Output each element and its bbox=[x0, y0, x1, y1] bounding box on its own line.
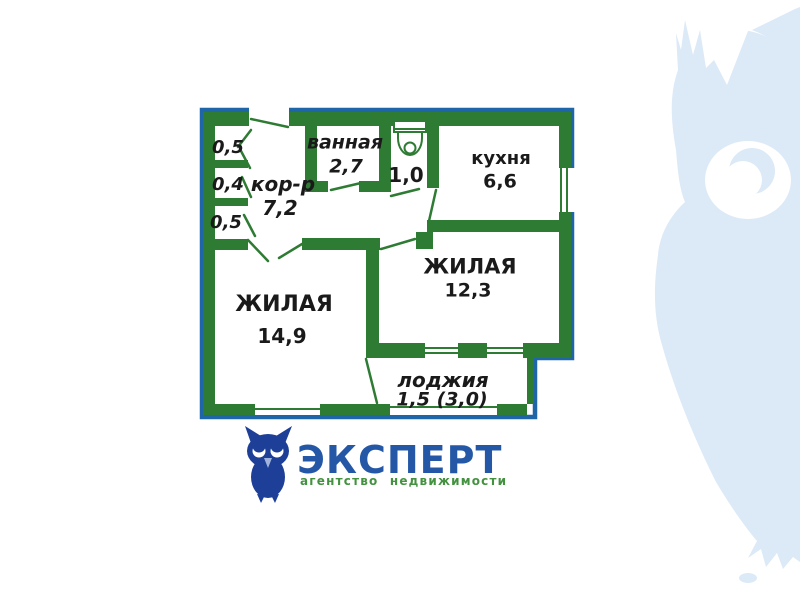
logo-subtitle: агентство недвижимости bbox=[300, 475, 507, 487]
floorplan-image: 0,5 0,4 0,5 кор-р 7,2 ванная 2,7 1,0 кух… bbox=[0, 0, 800, 600]
logo-owl-icon bbox=[0, 0, 800, 600]
